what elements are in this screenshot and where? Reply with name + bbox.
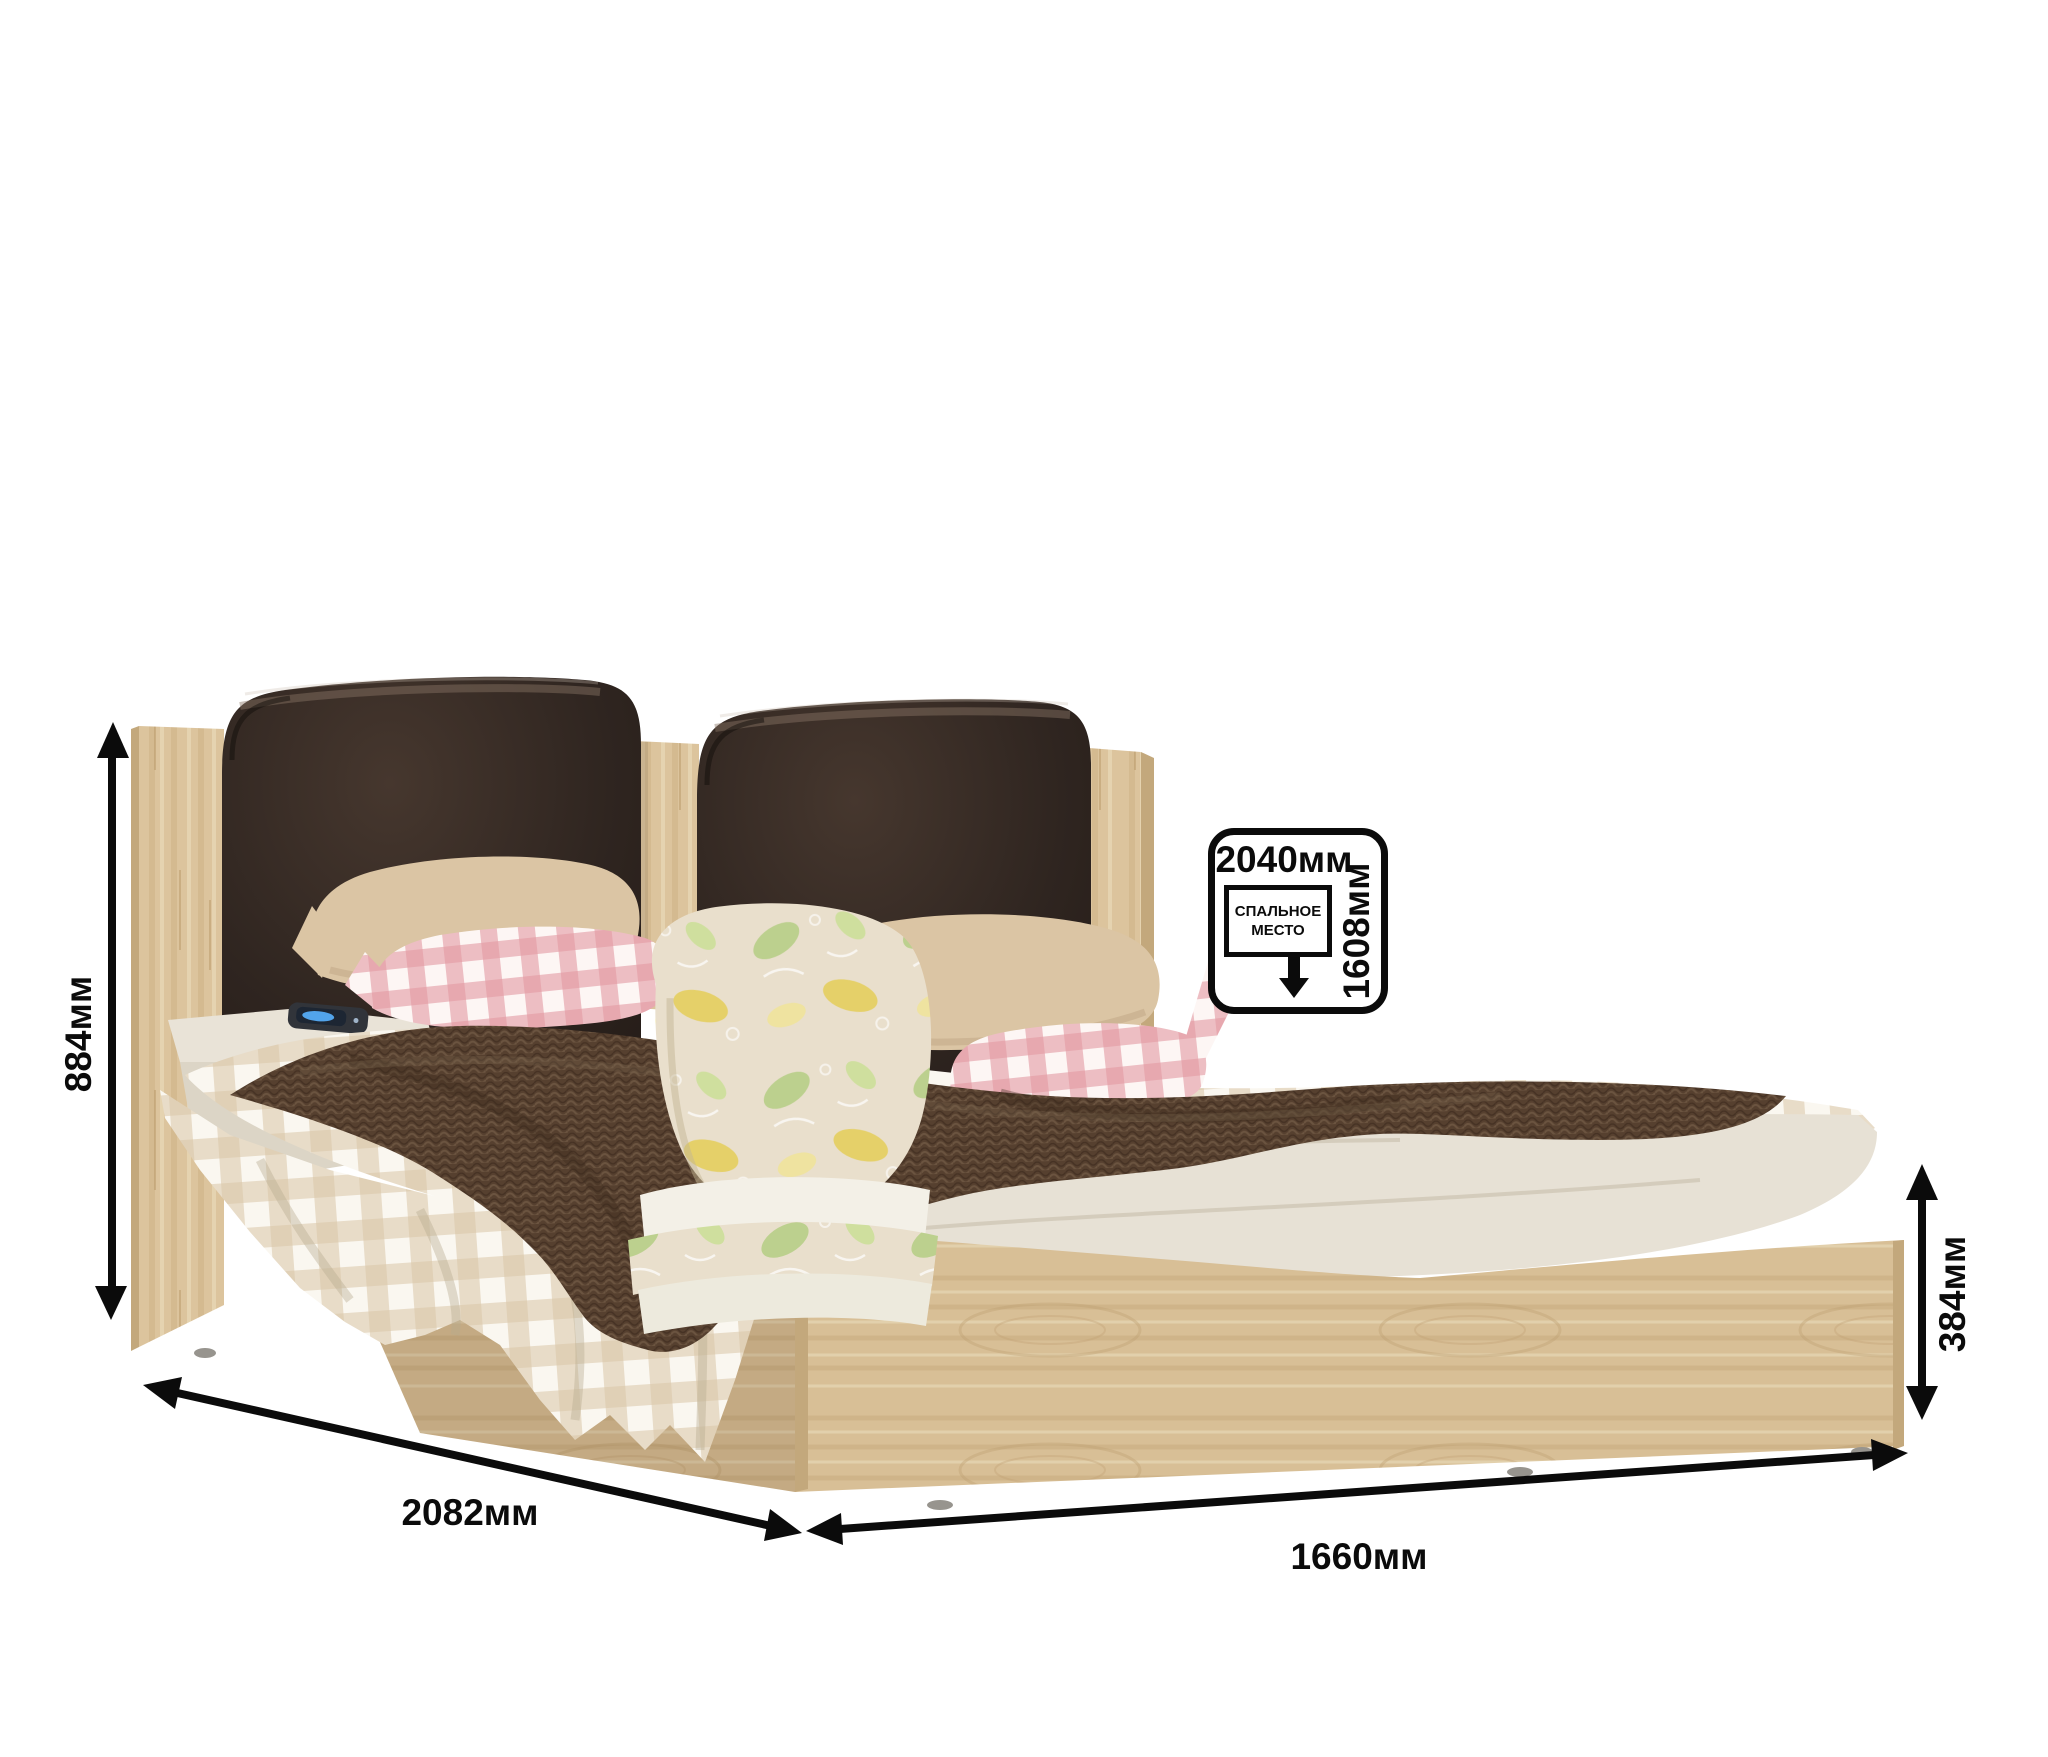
headboard-height-label: 884мм bbox=[58, 976, 100, 1092]
sleeping-area-width-label: 1608мм bbox=[1336, 862, 1378, 999]
footboard-height-label: 384мм bbox=[1932, 1236, 1974, 1352]
sleeping-area-badge: 2040мм СПАЛЬНОЕ МЕСТО 1608мм bbox=[1208, 828, 1388, 1014]
headboard-height-arrow bbox=[95, 722, 129, 1320]
bed-illustration bbox=[0, 0, 2048, 1757]
folded-clothes-stack bbox=[628, 1177, 938, 1334]
down-arrow-icon bbox=[1279, 978, 1309, 998]
sleeping-area-length-label: 2040мм bbox=[1215, 839, 1353, 881]
down-arrow-icon bbox=[1288, 957, 1300, 979]
product-dimension-visualization: 884мм 2082мм 1660мм 384мм 2040мм СПАЛЬНО… bbox=[0, 0, 2048, 1757]
sleeping-area-caption-line2: МЕСТО bbox=[1251, 921, 1304, 941]
sleeping-area-caption: СПАЛЬНОЕ МЕСТО bbox=[1224, 885, 1332, 957]
sleeping-area-caption-line1: СПАЛЬНОЕ bbox=[1235, 902, 1321, 922]
front-width-label: 1660мм bbox=[1290, 1536, 1427, 1578]
length-diagonal-label: 2082мм bbox=[401, 1492, 538, 1534]
